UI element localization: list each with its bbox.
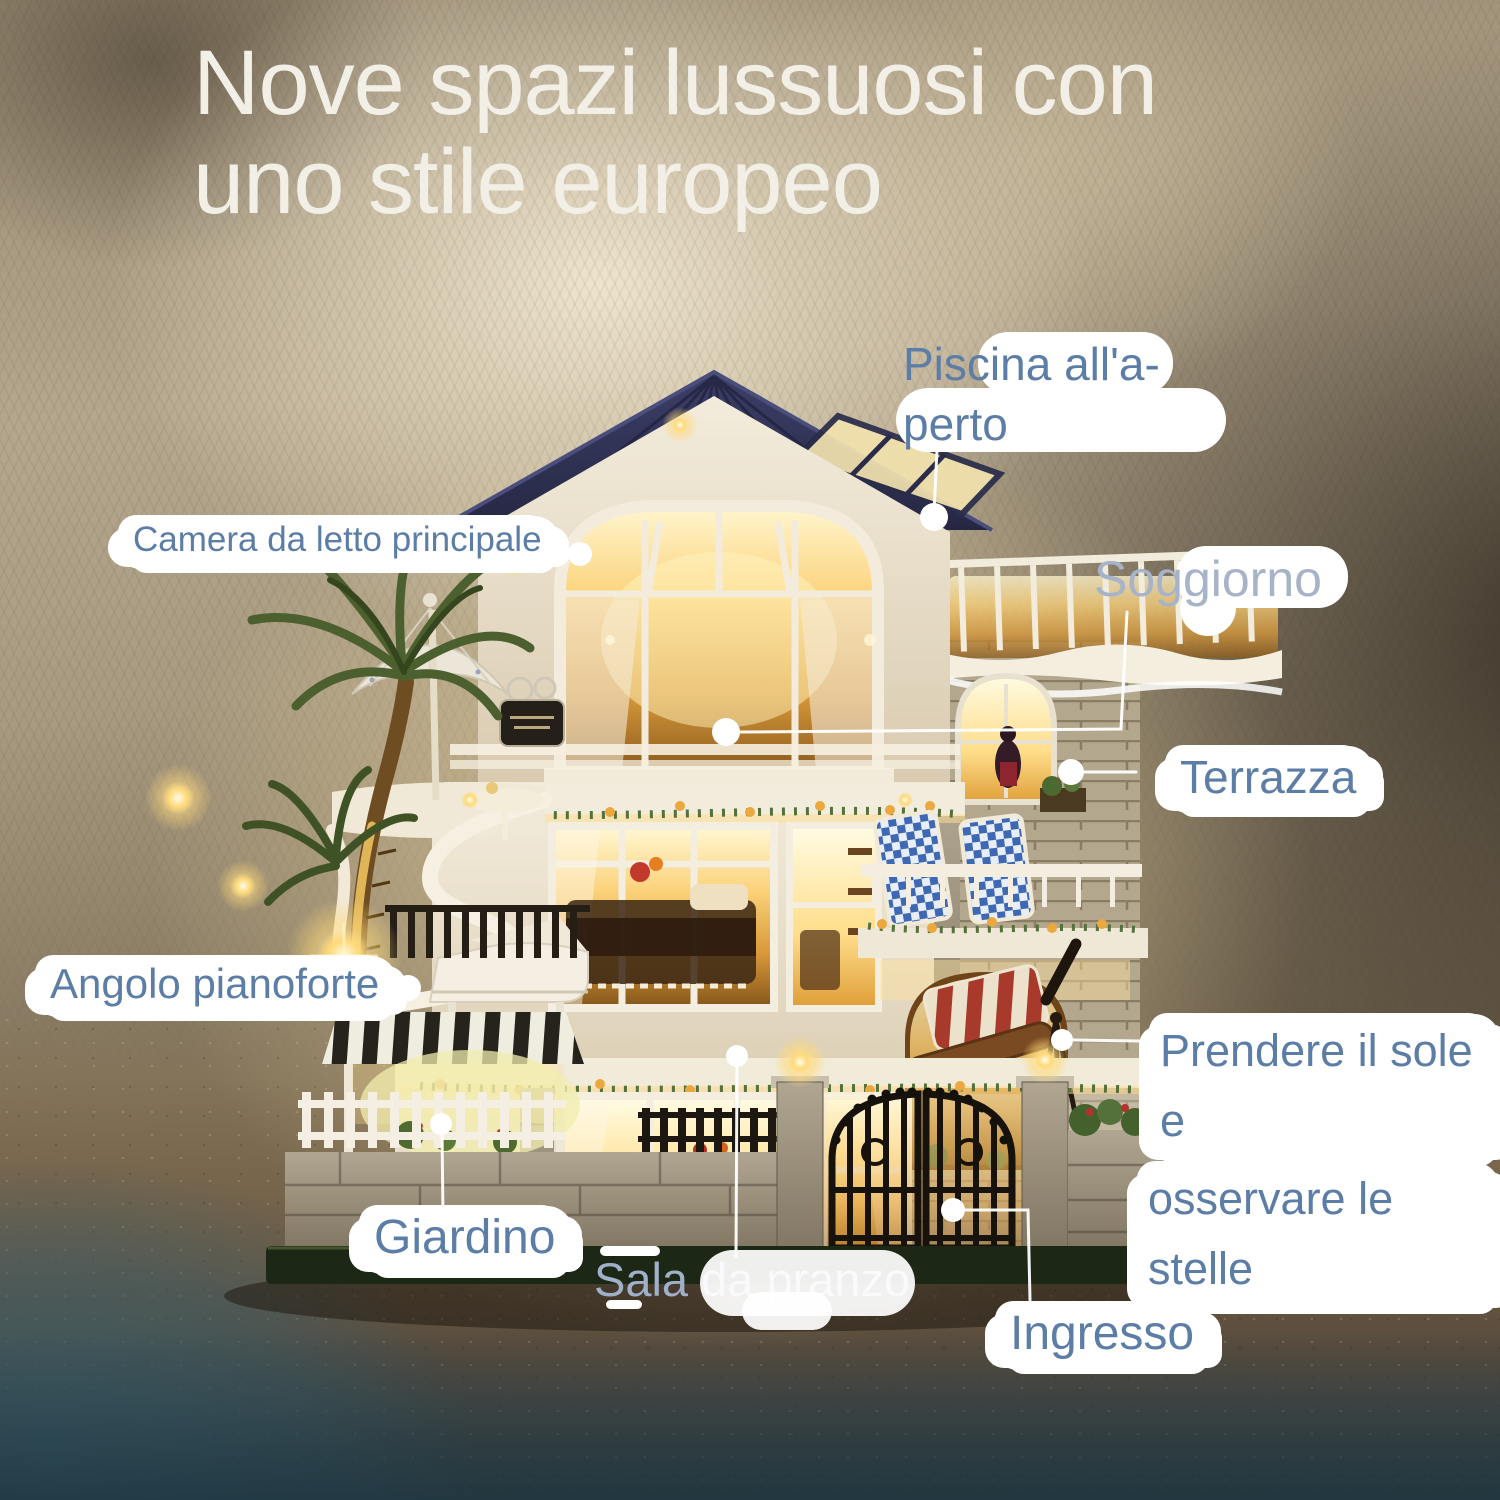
leader-sala — [736, 1062, 737, 1256]
label-text: Angolo pianoforte — [32, 956, 397, 1017]
leader-prendere — [1070, 1040, 1140, 1041]
product-infographic: Nove spazi lussuosi con uno stile europe… — [0, 0, 1500, 1500]
callout-dot-ingresso — [941, 1198, 965, 1222]
chair-silhouette — [800, 930, 840, 990]
pillar-lamp-left — [787, 1049, 813, 1075]
eraser-blob — [600, 1246, 660, 1256]
callout-dot-giardino — [430, 1113, 452, 1135]
leader-giardino — [442, 1130, 443, 1216]
label-ingresso: Ingresso — [992, 1302, 1212, 1370]
label-giardino: Giardino — [356, 1206, 573, 1274]
title-line-1: Nove spazi lussuosi con — [193, 34, 1157, 133]
label-text: perto — [903, 394, 1160, 454]
label-camera-da-letto: Camera da letto principale — [115, 516, 560, 569]
callout-dot-prendere — [1051, 1029, 1073, 1051]
label-text: Terrazza — [1162, 746, 1374, 813]
callout-dot-terrazza — [1058, 759, 1084, 785]
middle-floor-bedroom-window — [548, 822, 882, 1012]
label-angolo-pianoforte: Angolo pianoforte — [32, 956, 397, 1017]
label-terrazza: Terrazza — [1162, 746, 1374, 813]
label-soggiorno: Soggiorno — [1094, 550, 1322, 608]
eraser-blob — [606, 1300, 642, 1309]
title-line-2: uno stile europeo — [193, 133, 1157, 232]
callout-dot-camera — [568, 542, 592, 566]
callout-dot-sala — [726, 1045, 748, 1067]
label-text: Camera da letto principale — [115, 516, 560, 569]
label-text: Soggiorno — [1094, 551, 1322, 607]
gate-pillar-left — [777, 1082, 823, 1254]
callout-dot-soggiorno — [712, 718, 740, 746]
label-text: Giardino — [356, 1206, 573, 1274]
label-text: Piscina all'a- — [903, 334, 1160, 394]
label-text: osservare le stelle — [1134, 1162, 1500, 1310]
label-piscina-allaperto: Piscina all'a- perto — [903, 334, 1160, 454]
callout-dot-piscina — [920, 503, 948, 531]
terrace-railing — [862, 864, 1142, 877]
callout-dot-angolo — [395, 975, 421, 1001]
label-prendere-il-sole: Prendere il sole e osservare le stelle — [1146, 1014, 1500, 1310]
label-text: Prendere il sole e — [1146, 1014, 1500, 1162]
eraser-blob — [742, 1292, 832, 1330]
pillar-lamp-right — [1033, 1048, 1057, 1072]
hanging-sign — [500, 678, 564, 746]
page-title: Nove spazi lussuosi con uno stile europe… — [193, 34, 1157, 232]
label-text: Ingresso — [992, 1302, 1212, 1370]
